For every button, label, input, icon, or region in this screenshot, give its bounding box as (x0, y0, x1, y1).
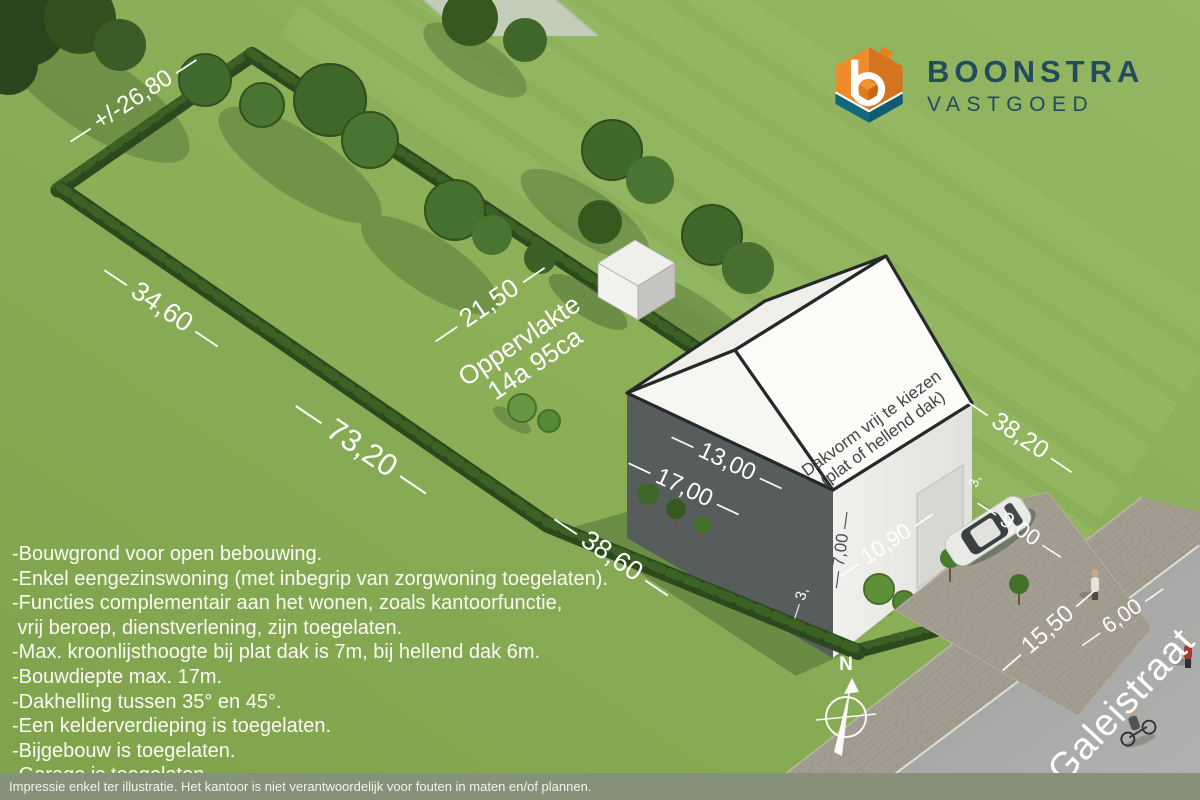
regulation-line: -Bijgebouw is toegelaten. (12, 739, 608, 764)
disclaimer-bar: Impressie enkel ter illustratie. Het kan… (0, 773, 1200, 800)
tree (626, 156, 674, 204)
regulation-line: -Enkel eengezinswoning (met inbegrip van… (12, 567, 608, 592)
tree (472, 215, 512, 255)
tree (342, 112, 398, 168)
compass-north-label: N (839, 654, 853, 676)
logo-brand-subtitle: VASTGOED (927, 93, 1144, 117)
boonstra-logo-text: BOONSTRA VASTGOED (927, 54, 1144, 117)
tree (578, 200, 622, 244)
regulation-line: -Bouwdiepte max. 17m. (12, 665, 608, 690)
regulation-line: -Max. kroonlijsthoogte bij plat dak is 7… (12, 640, 608, 665)
regulation-line: -Functies complementair aan het wonen, z… (12, 591, 608, 616)
regulation-line: -Dakhelling tussen 35° en 45°. (12, 690, 608, 715)
regulation-line: vrij beroep, dienstverlening, zijn toege… (12, 616, 608, 641)
boonstra-logo: BOONSTRA VASTGOED (828, 42, 1144, 128)
tree (1009, 574, 1029, 594)
regulation-line: -Een kelderverdieping is toegelaten. (12, 714, 608, 739)
tree (693, 516, 711, 534)
tree (240, 83, 284, 127)
tree (94, 19, 146, 71)
shrub (538, 410, 560, 432)
regulation-line: -Bouwgrond voor open bebouwing. (12, 542, 608, 567)
logo-brand-name: BOONSTRA (927, 54, 1144, 90)
shrub (864, 574, 894, 604)
boonstra-logo-icon (828, 42, 910, 128)
regulations-list: -Bouwgrond voor open bebouwing. -Enkel e… (12, 542, 608, 788)
tree (722, 242, 774, 294)
shrub (508, 394, 536, 422)
site-plan-illustration: — +/-26,80 — — 34,60 — — 73,20 — — 21,50… (0, 0, 1200, 800)
tree (503, 18, 547, 62)
disclaimer-text: Impressie enkel ter illustratie. Het kan… (0, 773, 1200, 800)
